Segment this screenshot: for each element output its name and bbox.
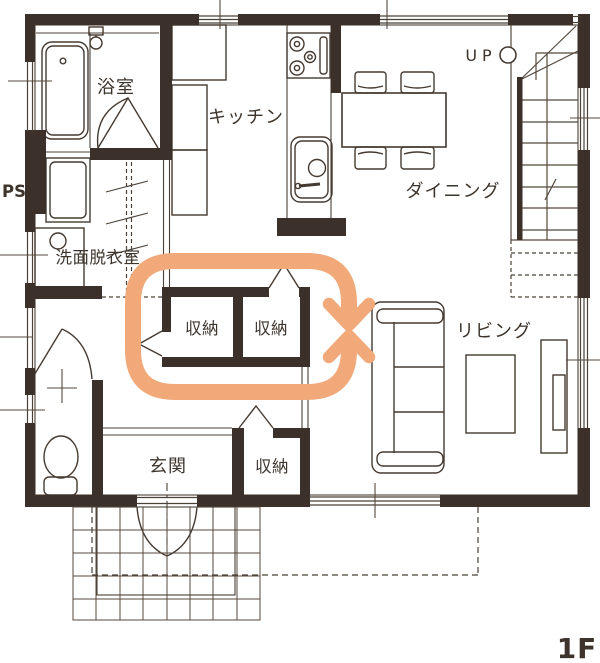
coffee-table: [466, 355, 515, 433]
bathroom-folding-door: [98, 98, 158, 148]
label-kitchen: キッチン: [208, 107, 284, 128]
window-left-1: [28, 62, 33, 132]
window-left-4: [28, 395, 33, 423]
window-top-1: [199, 16, 238, 23]
label-storage-right: 収納: [254, 319, 288, 338]
floor-plan-drawing: 浴室 キッチン ダイニング リビング 洗面脱衣室 収納 収納 収納 玄関 UP …: [0, 0, 600, 663]
label-washroom: 洗面脱衣室: [56, 248, 141, 267]
closet-left-door: [139, 331, 162, 356]
toilet-door: [33, 329, 92, 403]
bathroom-east-wall: [160, 14, 172, 155]
sofa: [372, 302, 444, 473]
label-bathroom: 浴室: [97, 77, 135, 98]
label-living: リビング: [456, 321, 532, 342]
eave-outline: [92, 507, 478, 575]
bathtub: [42, 42, 88, 139]
tv-board: [541, 340, 567, 453]
window-right-1: [581, 88, 588, 150]
floor-label: 1F: [557, 632, 598, 663]
label-entrance: 玄関: [149, 456, 187, 477]
entrance-porch: [73, 507, 260, 620]
window-top-2: [380, 16, 508, 23]
closet-entrance-door: [239, 406, 273, 428]
porch-step: [97, 507, 235, 595]
label-storage-entrance: 収納: [255, 457, 289, 476]
label-dining: ダイニング: [406, 181, 501, 202]
label-pipe-space: PS: [2, 182, 26, 201]
floor-plan: 浴室 キッチン ダイニング リビング 洗面脱衣室 収納 収納 収納 玄関 UP …: [0, 0, 600, 663]
counter-end-wall: [277, 218, 346, 236]
window-left-3: [28, 308, 33, 368]
stairs: [511, 25, 578, 297]
toilet: [44, 436, 78, 495]
stair-start-marker: [500, 47, 516, 63]
washing-machine-pan: [46, 158, 90, 222]
kitchen-sink-icon: [291, 137, 332, 202]
shower-faucet-icon: [89, 27, 103, 49]
dining-table: [342, 93, 446, 147]
window-right-2: [581, 298, 588, 428]
toilet-east-wall: [92, 380, 103, 495]
label-stairs-up: UP: [465, 46, 496, 65]
washroom-south-wall: [25, 286, 102, 299]
kitchen-dining-wall: [331, 14, 341, 93]
window-left-2: [28, 232, 33, 283]
label-storage-left: 収納: [185, 319, 219, 338]
bathroom-south-wall: [90, 148, 172, 160]
stove-icon: [287, 33, 330, 78]
pipe-space-block: [25, 130, 46, 214]
